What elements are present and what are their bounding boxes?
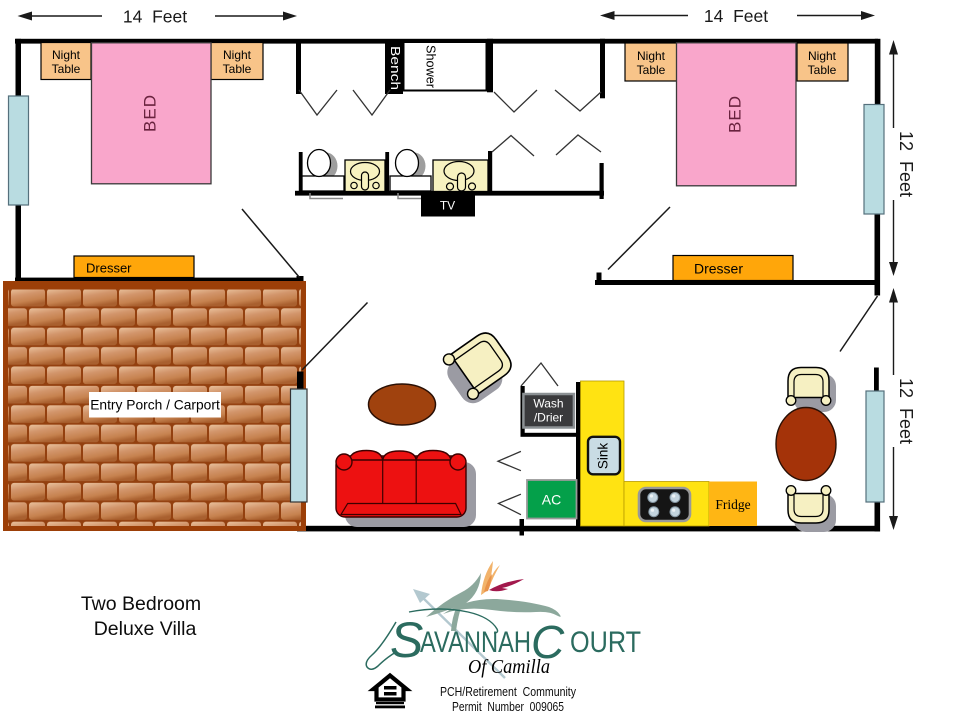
svg-text:Of Camilla: Of Camilla [468,656,550,678]
svg-text:Table: Table [52,62,81,76]
svg-text:12 Feet: 12 Feet [896,131,916,197]
svg-text:/Drier: /Drier [534,411,563,425]
svg-text:12 Feet: 12 Feet [896,378,916,444]
svg-text:Bench: Bench [388,46,402,90]
svg-text:Night: Night [223,48,252,62]
svg-text:AC: AC [542,492,561,508]
svg-text:Fridge: Fridge [715,497,750,512]
svg-text:Table: Table [808,63,837,77]
svg-text:OURT: OURT [570,626,641,659]
svg-text:Dresser: Dresser [694,261,743,277]
svg-text:Night: Night [52,48,81,62]
svg-text:Sink: Sink [596,443,611,470]
svg-text:Wash: Wash [533,397,563,411]
svg-text:Shower: Shower [424,45,439,89]
svg-text:S: S [390,612,423,668]
svg-text:Table: Table [637,63,666,77]
svg-text:Dresser: Dresser [86,261,132,276]
svg-text:Table: Table [223,62,252,76]
svg-text:Permit Number 009065: Permit Number 009065 [452,700,564,714]
svg-text:Deluxe Villa: Deluxe Villa [94,618,197,640]
svg-text:Entry Porch / Carport: Entry Porch / Carport [90,398,220,413]
svg-text:Night: Night [808,49,837,63]
svg-text:PCH/Retirement Community: PCH/Retirement Community [440,685,577,699]
svg-text:BED: BED [140,94,159,132]
svg-text:TV: TV [440,199,455,213]
svg-text:AVANNAH: AVANNAH [420,626,531,659]
svg-text:BED: BED [725,95,744,133]
svg-text:Night: Night [637,49,666,63]
svg-text:Two Bedroom: Two Bedroom [81,593,201,615]
svg-text:14 Feet: 14 Feet [704,6,768,26]
svg-text:14 Feet: 14 Feet [123,7,187,27]
